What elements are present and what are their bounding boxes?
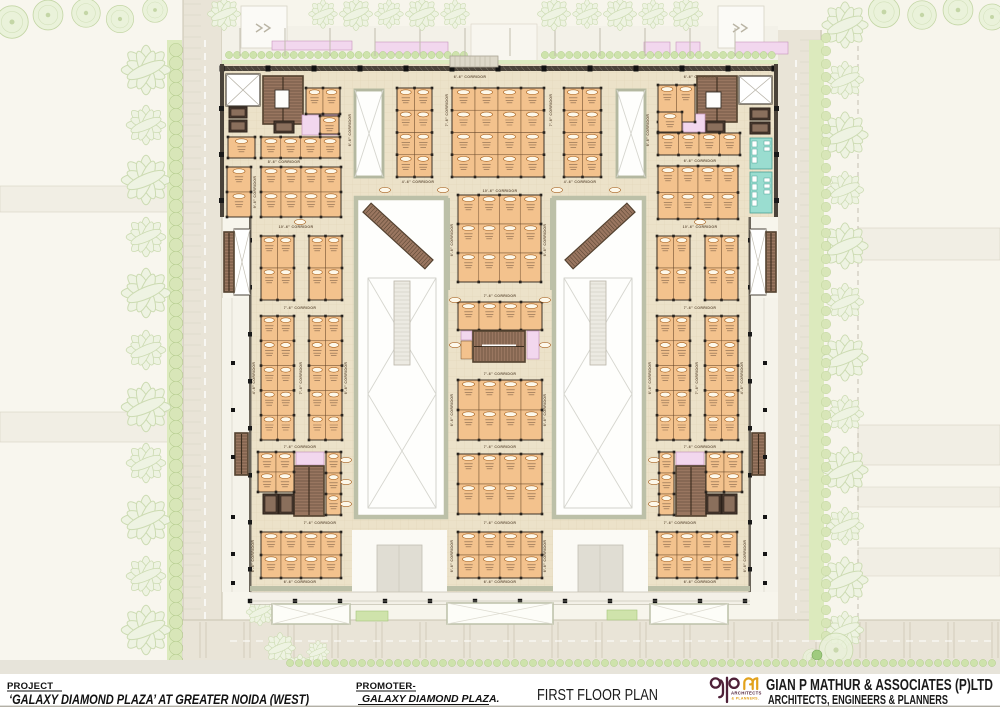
svg-text:6'-6" CORRIDOR: 6'-6" CORRIDOR: [684, 75, 717, 79]
svg-text:6'-6" CORRIDOR: 6'-6" CORRIDOR: [454, 75, 487, 79]
svg-text:PROMOTER-: PROMOTER-: [356, 681, 416, 692]
svg-text:6'-6" CORRIDOR: 6'-6" CORRIDOR: [450, 224, 454, 257]
svg-text:6'-6" CORRIDOR: 6'-6" CORRIDOR: [743, 540, 747, 573]
svg-text:10'-6" CORRIDOR: 10'-6" CORRIDOR: [279, 225, 314, 229]
svg-text:4'-6" CORRIDOR: 4'-6" CORRIDOR: [402, 180, 435, 184]
svg-text:7'-6" CORRIDOR: 7'-6" CORRIDOR: [484, 521, 517, 525]
svg-text:6'-6" CORRIDOR: 6'-6" CORRIDOR: [344, 362, 348, 395]
svg-text:ARCHITECTS: ARCHITECTS: [731, 691, 762, 696]
svg-text:4'-6" CORRIDOR: 4'-6" CORRIDOR: [564, 180, 597, 184]
svg-text:6'-6" CORRIDOR: 6'-6" CORRIDOR: [646, 114, 650, 147]
svg-text:10'-6" CORRIDOR: 10'-6" CORRIDOR: [483, 189, 518, 193]
svg-text:6'-6" CORRIDOR: 6'-6" CORRIDOR: [450, 394, 454, 427]
svg-text:6'-6" CORRIDOR: 6'-6" CORRIDOR: [284, 580, 317, 584]
svg-text:7'-6" CORRIDOR: 7'-6" CORRIDOR: [484, 372, 517, 376]
svg-text:9'-6" CORRIDOR: 9'-6" CORRIDOR: [253, 176, 257, 209]
svg-text:7'-6" CORRIDOR: 7'-6" CORRIDOR: [299, 362, 303, 395]
svg-text:‘GALAXY DIAMOND PLAZA’ AT GREA: ‘GALAXY DIAMOND PLAZA’ AT GREATER NOIDA …: [9, 692, 309, 707]
svg-text:7'-6" CORRIDOR: 7'-6" CORRIDOR: [304, 521, 337, 525]
svg-text:6'-6" CORRIDOR: 6'-6" CORRIDOR: [484, 580, 517, 584]
svg-text:7'-6" CORRIDOR: 7'-6" CORRIDOR: [664, 521, 697, 525]
svg-text:6'-6" CORRIDOR: 6'-6" CORRIDOR: [684, 159, 717, 163]
svg-text:6'-6" CORRIDOR: 6'-6" CORRIDOR: [543, 394, 547, 427]
svg-text:FIRST FLOOR PLAN: FIRST FLOOR PLAN: [537, 687, 658, 704]
svg-text:4'-6" CORRIDOR: 4'-6" CORRIDOR: [252, 362, 256, 395]
svg-text:6'-6" CORRIDOR: 6'-6" CORRIDOR: [450, 540, 454, 573]
svg-text:6'-6" CORRIDOR: 6'-6" CORRIDOR: [543, 540, 547, 573]
svg-text:7'-6" CORRIDOR: 7'-6" CORRIDOR: [684, 306, 717, 310]
svg-text:8'-6" CORRIDOR: 8'-6" CORRIDOR: [268, 160, 301, 164]
svg-text:7'-6" CORRIDOR: 7'-6" CORRIDOR: [284, 445, 317, 449]
svg-text:7'-6" CORRIDOR: 7'-6" CORRIDOR: [549, 94, 553, 127]
svg-text:6'-6" CORRIDOR: 6'-6" CORRIDOR: [251, 540, 255, 573]
svg-text:6'-6" CORRIDOR: 6'-6" CORRIDOR: [684, 580, 717, 584]
svg-text:& PLANNERS.: & PLANNERS.: [732, 696, 760, 700]
svg-text:GIAN P MATHUR & ASSOCIATES (P): GIAN P MATHUR & ASSOCIATES (P)LTD: [766, 677, 993, 694]
svg-text:7'-6" CORRIDOR: 7'-6" CORRIDOR: [284, 306, 317, 310]
svg-text:6'-6" CORRIDOR: 6'-6" CORRIDOR: [543, 224, 547, 257]
svg-text:7'-6" CORRIDOR: 7'-6" CORRIDOR: [684, 445, 717, 449]
svg-text:7'-6" CORRIDOR: 7'-6" CORRIDOR: [695, 362, 699, 395]
svg-text:7'-6" CORRIDOR: 7'-6" CORRIDOR: [445, 94, 449, 127]
svg-text:ARCHITECTS, ENGINEERS & PLANNE: ARCHITECTS, ENGINEERS & PLANNERS: [768, 693, 948, 707]
svg-text:6'-6" CORRIDOR: 6'-6" CORRIDOR: [648, 362, 652, 395]
svg-text:6'-6" CORRIDOR: 6'-6" CORRIDOR: [348, 114, 352, 147]
svg-text:4'-6" CORRIDOR: 4'-6" CORRIDOR: [740, 362, 744, 395]
svg-text:10'-6" CORRIDOR: 10'-6" CORRIDOR: [683, 225, 718, 229]
svg-text:7'-6" CORRIDOR: 7'-6" CORRIDOR: [484, 294, 517, 298]
svg-text:GALAXY DIAMOND PLAZA.: GALAXY DIAMOND PLAZA.: [362, 693, 500, 705]
svg-text:PROJECT: PROJECT: [7, 681, 53, 692]
svg-text:7'-6" CORRIDOR: 7'-6" CORRIDOR: [484, 445, 517, 449]
